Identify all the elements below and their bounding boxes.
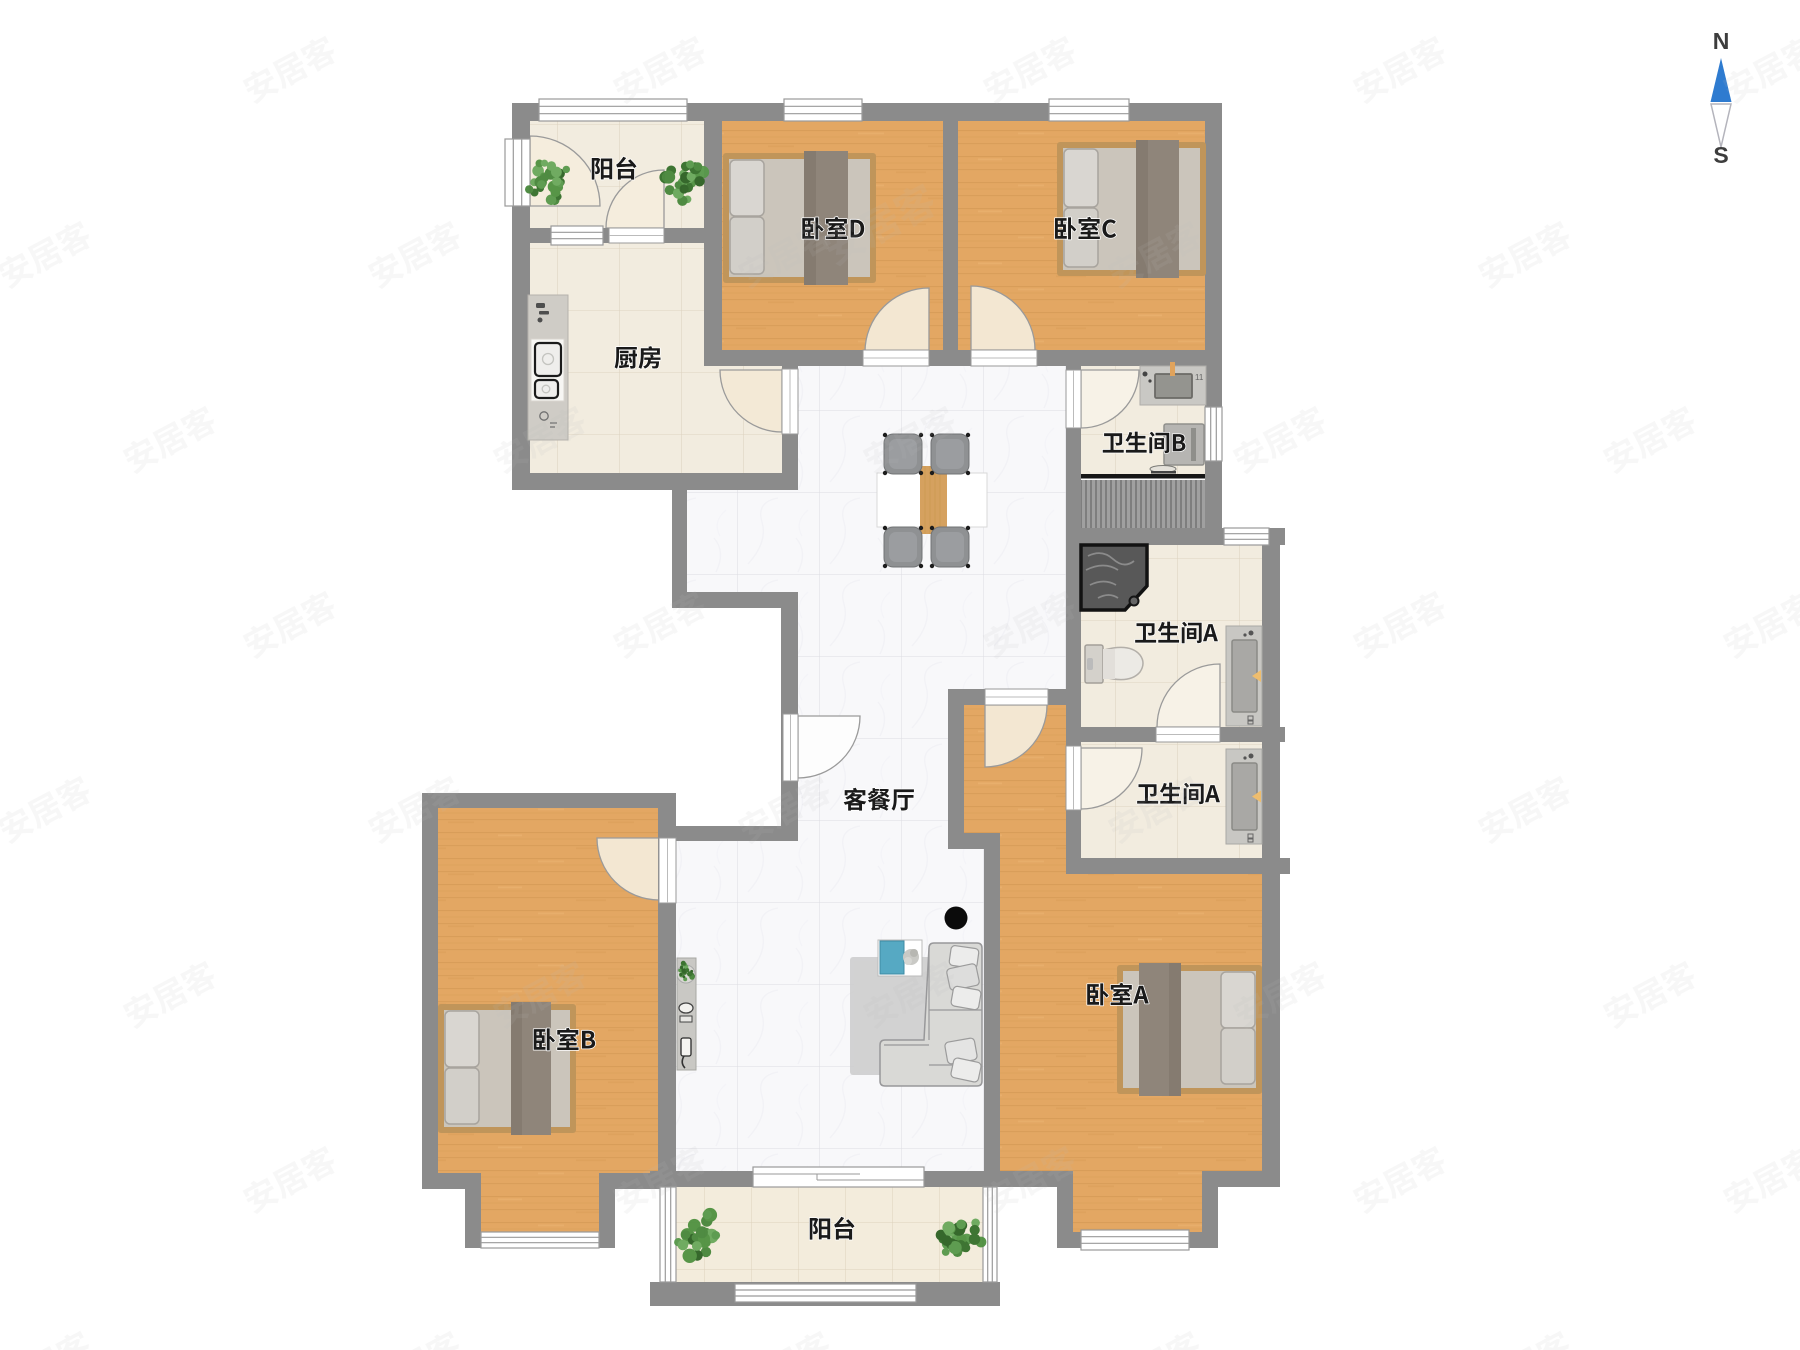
svg-text:11: 11	[1195, 373, 1204, 382]
svg-text:S: S	[1713, 142, 1728, 168]
svg-text:N: N	[1713, 28, 1730, 54]
